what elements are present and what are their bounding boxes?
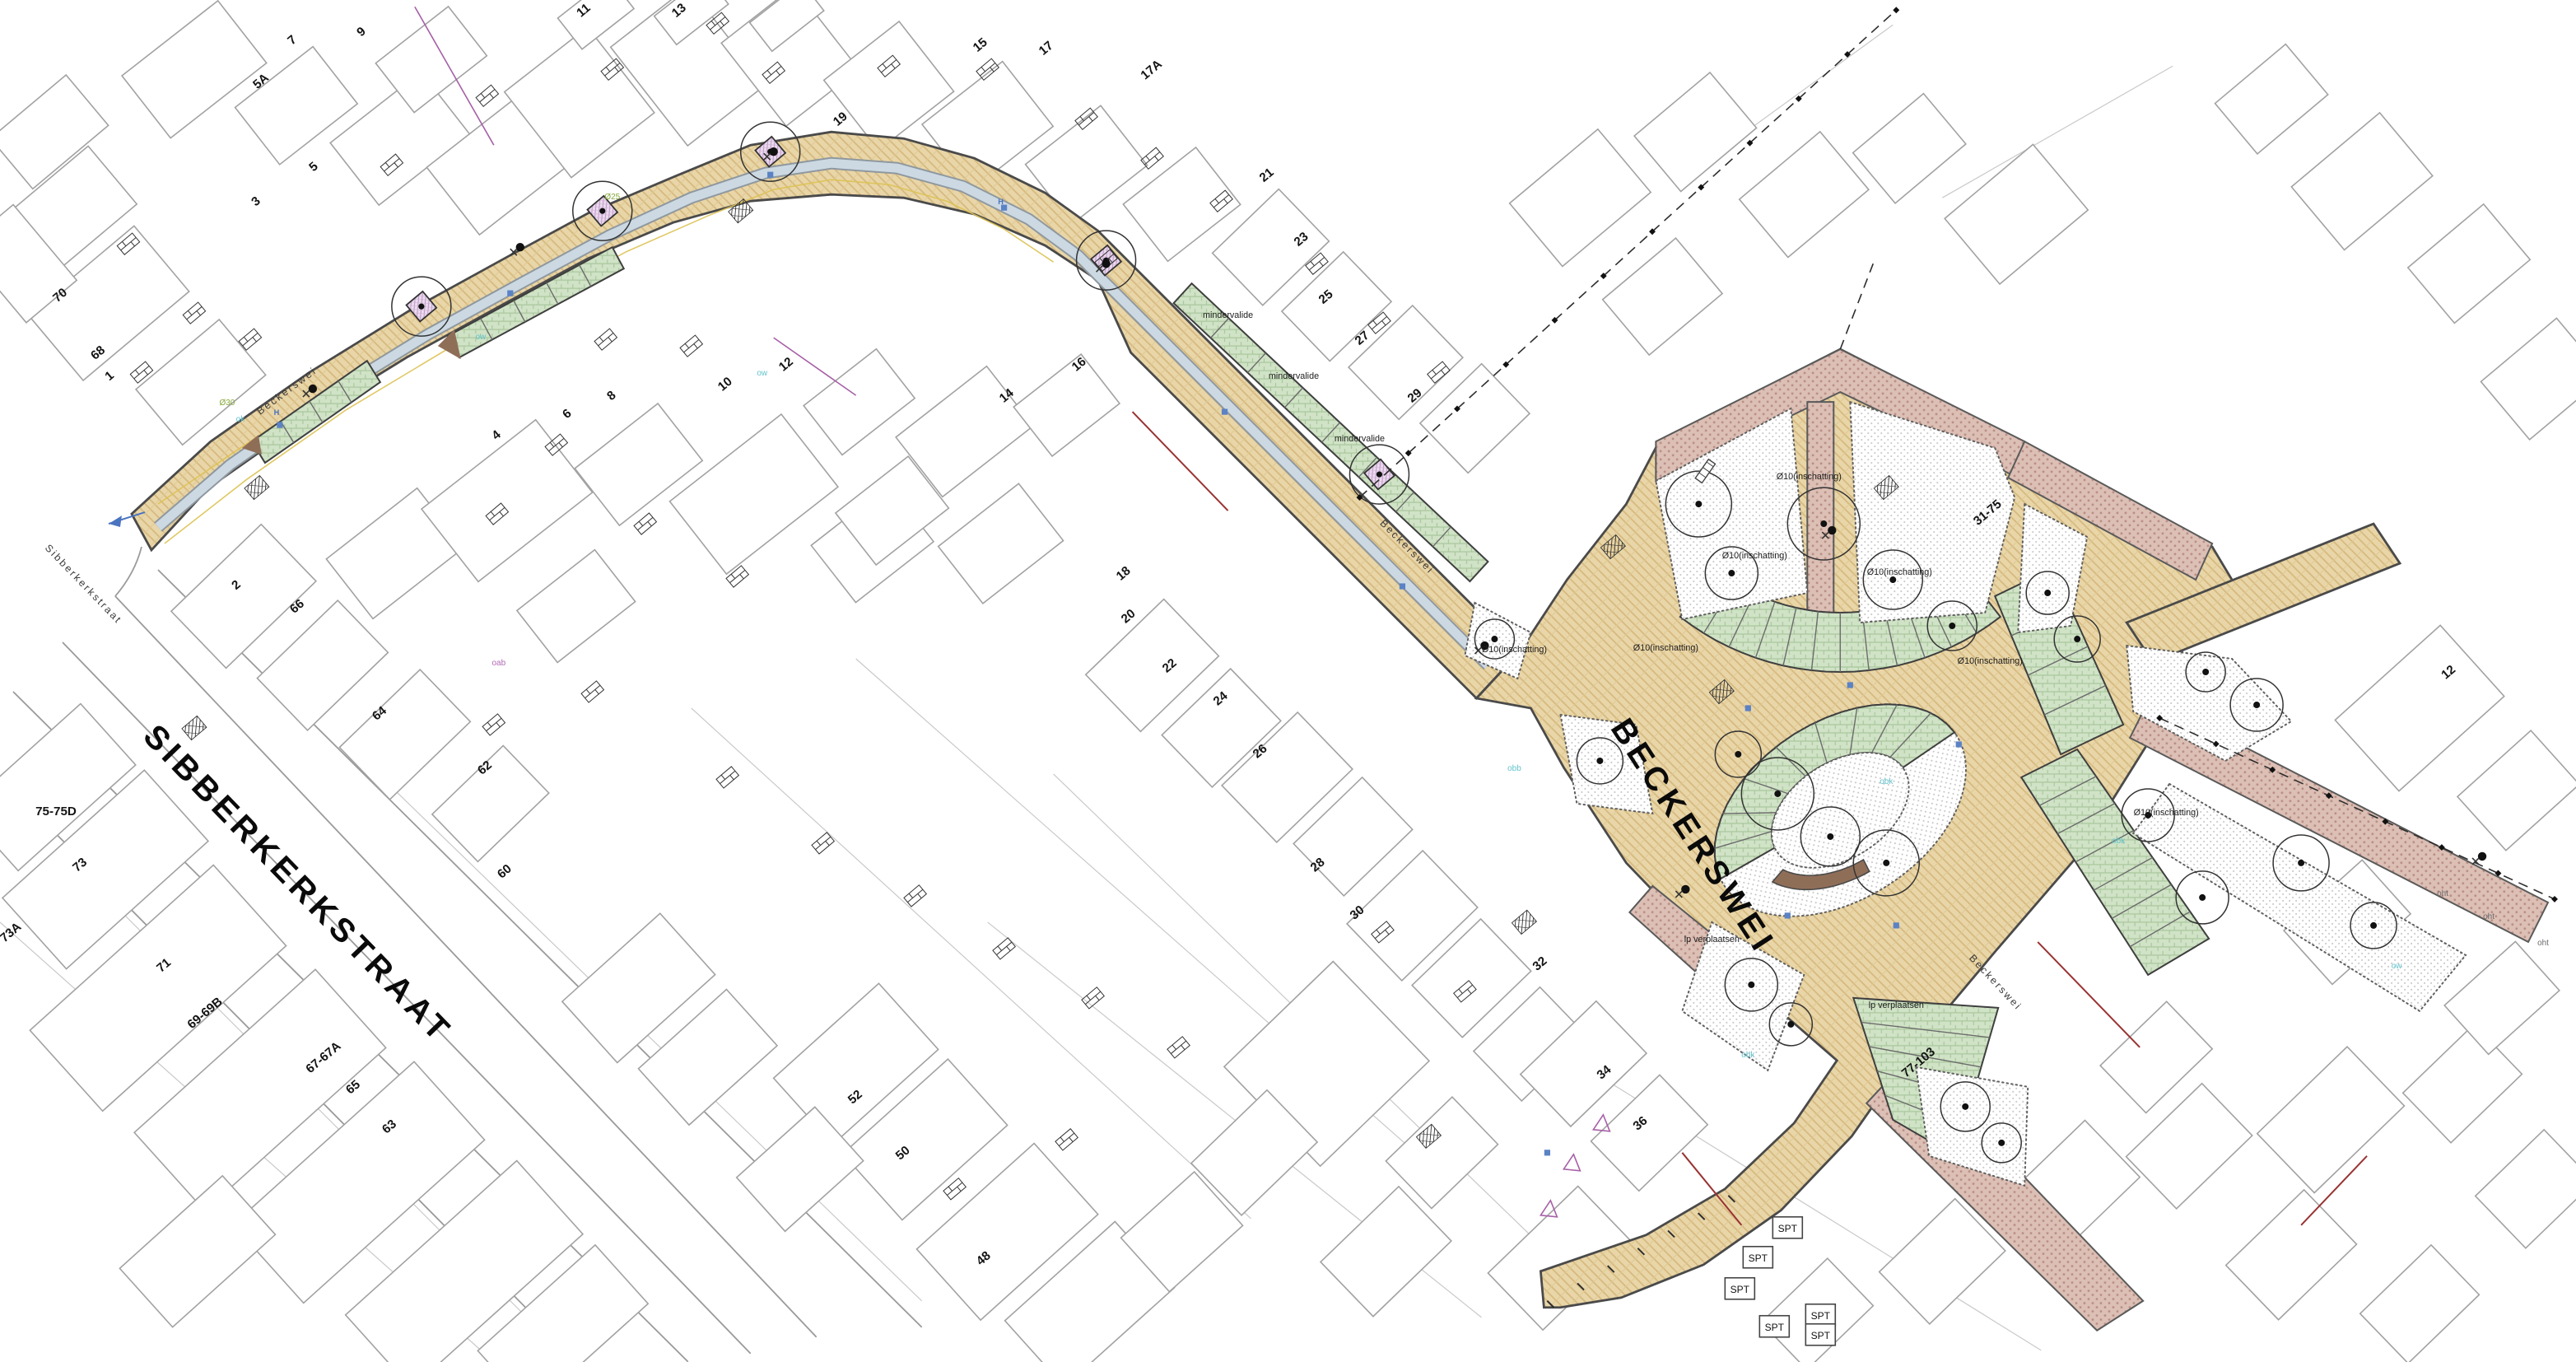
house-number-label: 60 (495, 862, 515, 882)
building-outline (1740, 132, 1869, 258)
wall-symbol-icon (904, 885, 926, 907)
building-outline (1634, 72, 1756, 192)
boundary-marker (1893, 7, 1899, 13)
house-number-label: 7 (285, 33, 299, 48)
house-number-label: 10 (715, 375, 735, 394)
annotation-label: mindervalide (1335, 434, 1385, 444)
annotation-label: lp verplaatsen (1684, 935, 1740, 945)
wall-symbol-icon (716, 767, 738, 788)
annotation-label: Ø10(inschatting) (1777, 472, 1842, 482)
house-number-label: 75-75D (35, 805, 77, 819)
building-outline (2291, 113, 2432, 250)
wall-symbol-icon (680, 335, 702, 357)
drain-marker (767, 172, 773, 178)
spt-label: SPT (1765, 1322, 1785, 1333)
annotation-label: Ø10(inschatting) (2134, 808, 2199, 818)
building-outline (2476, 1130, 2576, 1248)
annotation-label: Ø10(inschatting) (1482, 645, 1547, 655)
building-outline (2457, 730, 2576, 851)
building-outline (339, 669, 470, 800)
building-outline (1853, 94, 1966, 203)
survey-label-teal: obk (1880, 777, 1893, 786)
house-number-label: 18 (1114, 564, 1134, 584)
building-outline (939, 483, 1064, 604)
house-number-label: 5 (306, 159, 321, 175)
building-outline (119, 1176, 275, 1327)
building-outline (2408, 204, 2530, 324)
drain-marker (1894, 922, 1899, 928)
annotation-label: mindervalide (1269, 371, 1319, 381)
spt-box: SPT (1805, 1304, 1835, 1326)
house-number-label: 73A (0, 920, 24, 945)
survey-label-gray: oht (2537, 939, 2549, 948)
survey-label-teal: obk (1741, 1051, 1754, 1060)
house-number-label: 32 (1530, 954, 1550, 973)
gutter-h-label: H (998, 198, 1004, 206)
building-outline (2215, 44, 2328, 154)
building-outline (1013, 354, 1120, 456)
gutter-h-label: H (274, 408, 280, 417)
building-outline (1510, 129, 1651, 267)
street-name-small-label: Sibberkerkstraat (43, 542, 124, 626)
spt-label: SPT (1731, 1284, 1750, 1295)
wall-symbol-icon (1055, 1129, 1078, 1150)
site-plan-page: 5A791113151717A1921232527297068135266646… (0, 0, 2576, 1362)
house-number-label: 9 (354, 25, 368, 40)
annotation-label: Ø10(inschatting) (1958, 656, 2023, 666)
survey-label-green: Ø30 (219, 399, 235, 408)
crosshatch-symbol-icon (1512, 910, 1536, 934)
house-number-label: 15 (971, 35, 990, 55)
house-number-label: 12 (776, 355, 796, 375)
house-number-label: 6 (560, 406, 574, 421)
spt-box: SPT (1805, 1324, 1835, 1346)
wall-symbol-icon (993, 938, 1015, 959)
wall-symbol-icon (1082, 987, 1104, 1009)
drain-marker (507, 291, 513, 296)
wall-symbol-icon (581, 681, 603, 702)
wall-symbol-icon (594, 329, 617, 350)
building-outline (669, 414, 837, 574)
drain-marker (1847, 682, 1853, 688)
spt-label: SPT (1811, 1330, 1831, 1341)
drain-marker (277, 422, 282, 428)
house-number-label: 21 (1257, 165, 1277, 184)
survey-label-gray: oht (2437, 889, 2448, 898)
annotation-label: mindervalide (1203, 310, 1253, 320)
spt-box: SPT (1743, 1247, 1772, 1268)
survey-label-purple: oab (491, 659, 505, 668)
house-number-label: 17A (1139, 57, 1165, 82)
house-number-label: 3 (249, 194, 263, 209)
survey-label-teal: ow (757, 369, 768, 378)
building-outline (2257, 1047, 2405, 1192)
wall-symbol-icon (476, 85, 498, 106)
spt-box: SPT (1772, 1217, 1802, 1238)
spt-label: SPT (1778, 1223, 1798, 1234)
wall-symbol-icon (634, 513, 656, 534)
wall-symbol-icon (1167, 1037, 1190, 1058)
house-number-label: 20 (1119, 607, 1139, 627)
spt-label: SPT (1811, 1310, 1831, 1322)
wall-symbol-icon (943, 1178, 966, 1200)
house-number-label: 17 (1036, 39, 1056, 58)
annotation-label: Ø10(inschatting) (1633, 643, 1698, 653)
tree (2176, 871, 2229, 924)
annotation-label: lp verplaatsen (1869, 1001, 1924, 1010)
lamppost-dot (2472, 852, 2486, 865)
survey-label-gray: oht (2483, 912, 2494, 921)
building-outline (1603, 238, 1722, 355)
building-outline (2403, 1024, 2522, 1143)
building-outline (2226, 1190, 2357, 1320)
survey-label-teal: obk (2112, 837, 2125, 846)
site-plan-svg: 5A791113151717A1921232527297068135266646… (0, 0, 2576, 1362)
spt-label: SPT (1749, 1252, 1768, 1264)
drain-marker (1222, 409, 1227, 415)
building-outline (2481, 318, 2576, 440)
house-number-label: 19 (831, 110, 850, 129)
house-number-label: 4 (489, 427, 504, 443)
wall-symbol-icon (183, 302, 205, 324)
crosshatch-symbol-icon (182, 716, 207, 739)
drain-marker (1785, 912, 1791, 918)
survey-label-teal: ok (236, 415, 245, 424)
survey-label-teal: ow (2392, 962, 2403, 971)
wall-symbol-icon (482, 714, 505, 735)
house-number-label: 1 (102, 368, 117, 384)
building-outline (517, 550, 636, 663)
drain-marker (1400, 583, 1405, 589)
building-outline (2335, 625, 2504, 791)
survey-label-green: Ø25 (604, 193, 620, 202)
annotation-label: Ø10(inschatting) (1867, 567, 1932, 577)
spt-box: SPT (1725, 1278, 1754, 1299)
survey-label-teal: ow (475, 333, 487, 342)
drain-marker (1544, 1150, 1550, 1155)
building-outline (1591, 1075, 1707, 1191)
boundary-marker (2551, 896, 2558, 903)
drain-marker (1956, 741, 1962, 747)
street-name-small-label: Beckerswei (1967, 952, 2024, 1012)
survey-label-teal: obb (1507, 764, 1521, 773)
annotation-label: Ø10(inschatting) (1722, 551, 1787, 561)
drain-marker (1745, 705, 1751, 711)
building-outline (1945, 144, 2088, 284)
house-number-label: 8 (604, 388, 618, 403)
building-outline (2360, 1245, 2480, 1362)
spt-box: SPT (1759, 1316, 1789, 1337)
